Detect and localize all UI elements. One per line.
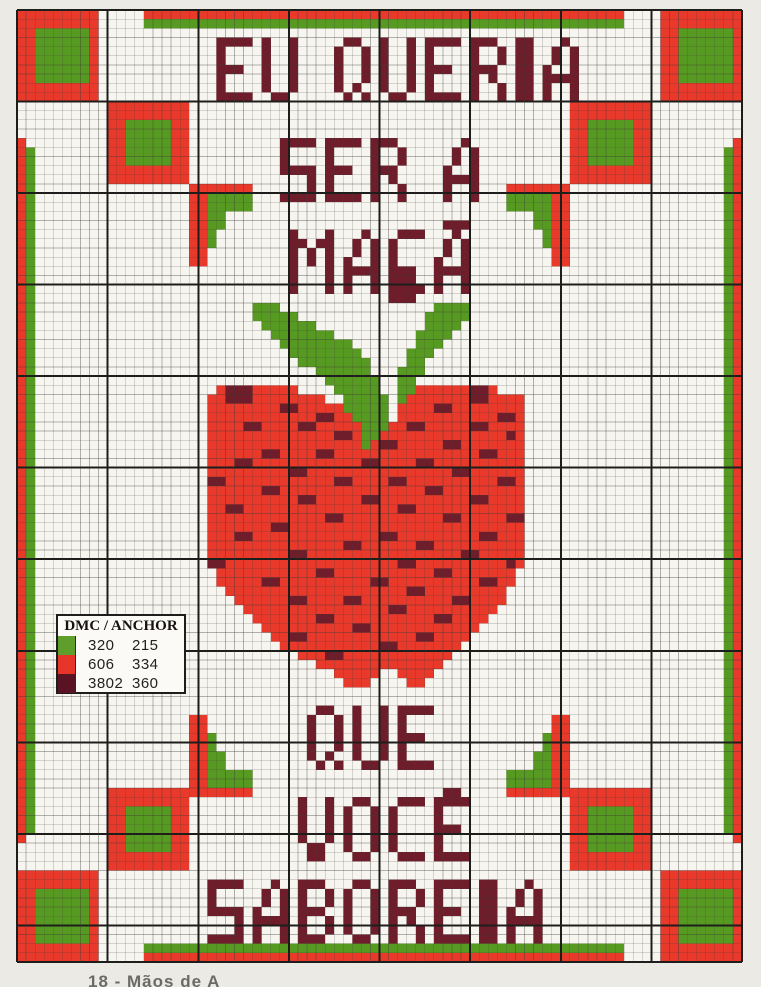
legend-row: 3802360 — [58, 674, 184, 693]
legend-row: 606334 — [58, 655, 184, 674]
stitch-grid — [0, 0, 761, 987]
legend-rows: 3202156063343802360 — [58, 636, 184, 693]
anchor-number: 215 — [132, 637, 159, 654]
dmc-number: 3802 — [88, 675, 132, 692]
anchor-number: 360 — [132, 675, 159, 692]
legend-title: DMC / ANCHOR — [58, 618, 184, 635]
page-caption: 18 - Mãos de A — [88, 972, 220, 987]
color-chip-red — [58, 655, 76, 674]
dmc-number: 606 — [88, 656, 132, 673]
dmc-number: 320 — [88, 637, 132, 654]
legend-row: 320215 — [58, 636, 184, 655]
cross-stitch-pattern-page: DMC / ANCHOR 3202156063343802360 18 - Mã… — [0, 0, 761, 987]
anchor-number: 334 — [132, 656, 159, 673]
color-chip-green — [58, 636, 76, 655]
color-chip-dark — [58, 674, 76, 693]
color-legend: DMC / ANCHOR 3202156063343802360 — [56, 614, 186, 694]
